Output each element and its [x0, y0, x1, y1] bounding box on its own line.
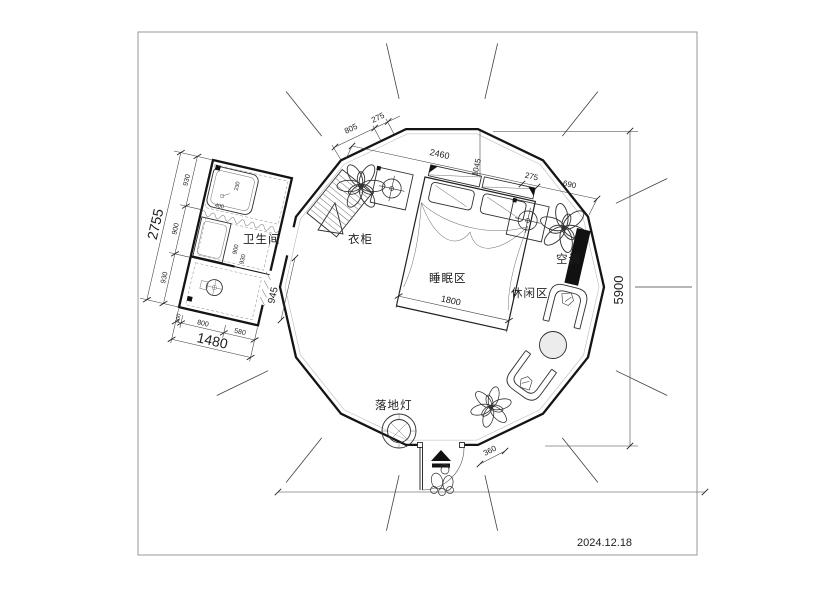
ground-baseline	[275, 489, 708, 495]
armchair-lower	[503, 350, 557, 404]
label-leisure-area: 休闲区	[511, 286, 549, 300]
person-figure	[430, 464, 455, 495]
entrance	[418, 443, 465, 496]
dim-2460: 2460	[429, 147, 451, 161]
label-sleeping-area: 睡眠区	[429, 272, 467, 285]
armchair-upper	[543, 282, 589, 329]
bed: 1800	[393, 164, 541, 333]
dim-tub-230: 230	[234, 181, 242, 191]
dome-inner-wall	[285, 134, 599, 440]
round-table	[540, 332, 567, 359]
wardrobe	[307, 169, 372, 236]
entry-arrow	[431, 450, 451, 461]
dim-945: 945	[266, 286, 281, 305]
door-jamb-right	[460, 443, 465, 448]
bathroom-inner-wall	[191, 256, 235, 266]
dim-tub-400: 400	[214, 203, 224, 211]
dim-bath-total-h: 2755	[144, 207, 167, 241]
dim-805: 805	[343, 122, 359, 136]
floor-lamp	[382, 414, 416, 448]
nightstand-left	[369, 166, 413, 210]
dim-bed-width: 1800	[440, 293, 462, 307]
dim-275-right: 275	[524, 171, 540, 183]
label-floor-lamp: 落地灯	[375, 399, 413, 412]
label-air-conditioner: 空调	[556, 252, 581, 266]
door-jamb-left	[418, 443, 423, 448]
title-block-date: 2024.12.18	[577, 537, 632, 549]
toilet-symbol	[199, 277, 224, 298]
dim-inner-930: 930	[239, 253, 247, 265]
dim-275-top: 275	[370, 111, 386, 125]
floor-plan-page: 400 230 900 930 930 900 930 2755	[0, 0, 837, 592]
dim-5900: 5900	[611, 276, 626, 305]
dim-inner-900: 900	[232, 243, 240, 255]
floor-plan-drawing: 400 230 900 930 930 900 930 2755	[0, 0, 837, 592]
ceiling-lamp-symbol-left	[376, 173, 407, 204]
dome-wall	[280, 129, 604, 445]
bathroom-annex: 400 230 900 930 930 900 930 2755	[122, 146, 296, 362]
label-bathroom: 卫生间	[243, 232, 281, 246]
label-wardrobe: 衣柜	[348, 232, 373, 246]
